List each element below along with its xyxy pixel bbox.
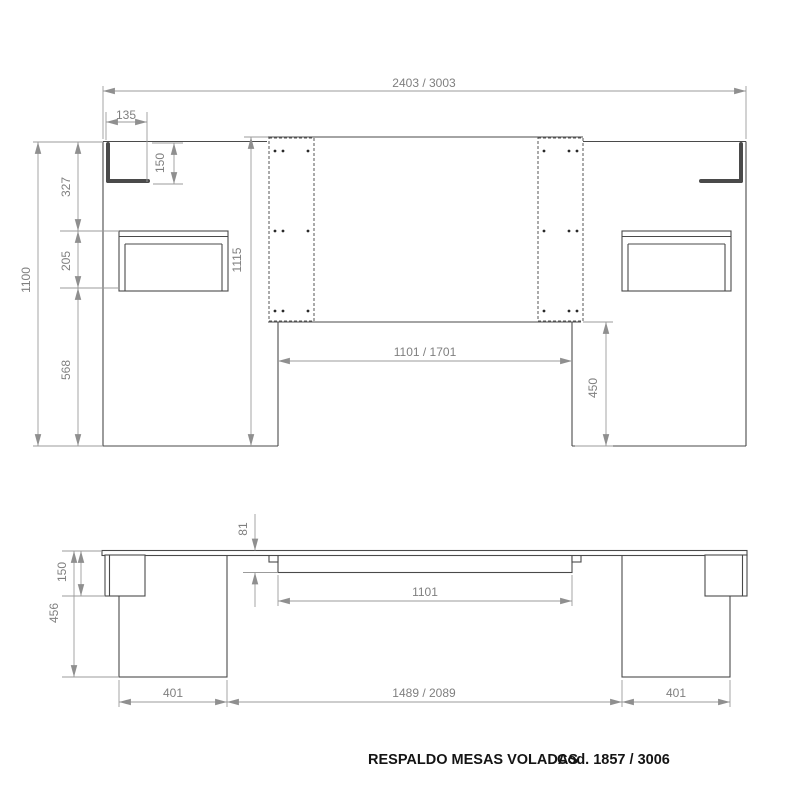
- drawing-sheet: 2403 / 3003 135 150 327 205 568 11: [0, 0, 800, 800]
- dim-center-span: 1489 / 2089: [392, 686, 456, 700]
- plan-view: 81 1101 150 456 401 1489 / 2089 401: [47, 514, 747, 707]
- front-view: 2403 / 3003 135 150 327 205 568 11: [19, 76, 746, 446]
- screw-hole: [543, 150, 546, 153]
- dim-left-table-width: 401: [163, 686, 183, 700]
- nightstand-right-front: [622, 231, 731, 291]
- screw-hole: [307, 310, 310, 313]
- dim-shelf-depth: 150: [55, 562, 69, 582]
- dim-right-table-width: 401: [666, 686, 686, 700]
- mounting-plate-left: [269, 138, 314, 321]
- dim-center-panel-height: 1115: [230, 247, 244, 272]
- technical-drawing: 2403 / 3003 135 150 327 205 568 11: [0, 0, 800, 800]
- screw-hole: [274, 310, 277, 313]
- screw-hole: [274, 230, 277, 233]
- dim-seg-table: 205: [59, 251, 73, 271]
- dim-batten-depth: 81: [236, 522, 250, 536]
- screw-hole: [282, 150, 285, 153]
- dim-total-width: 2403 / 3003: [392, 76, 456, 90]
- screw-hole: [568, 150, 571, 153]
- screw-hole: [576, 310, 579, 313]
- dim-table-depth: 456: [47, 603, 61, 623]
- dim-batten-width: 1101: [412, 585, 438, 599]
- screw-hole: [274, 150, 277, 153]
- screw-hole: [576, 230, 579, 233]
- drawing-code: Cod. 1857 / 3006: [557, 752, 670, 768]
- screw-hole: [307, 150, 310, 153]
- dim-shelf-drop: 150: [153, 153, 167, 173]
- screw-hole: [307, 230, 310, 233]
- screw-hole: [282, 230, 285, 233]
- dim-cutout-height: 450: [586, 378, 600, 398]
- screw-hole: [568, 230, 571, 233]
- dim-total-height: 1100: [19, 267, 33, 293]
- wall-bracket-left: [108, 144, 148, 181]
- shelf-left-plan: [105, 555, 145, 596]
- screw-hole: [568, 310, 571, 313]
- screw-hole: [282, 310, 285, 313]
- screw-hole: [576, 150, 579, 153]
- dim-seg-lower: 568: [59, 360, 73, 380]
- dim-cutout-width: 1101 / 1701: [394, 345, 457, 359]
- screw-hole: [543, 230, 546, 233]
- dim-shelf-width: 135: [116, 108, 136, 122]
- title-block: RESPALDO MESAS VOLADAS Cod. 1857 / 3006: [368, 752, 670, 768]
- headboard-panel-plan: [102, 551, 747, 556]
- screw-hole: [543, 310, 546, 313]
- nightstand-left-front: [119, 231, 228, 291]
- wall-bracket-right: [701, 144, 741, 181]
- shelf-right-plan: [705, 555, 747, 596]
- dim-seg-upper: 327: [59, 177, 73, 197]
- mounting-plate-right: [538, 138, 583, 321]
- drawing-title: RESPALDO MESAS VOLADAS: [368, 752, 578, 768]
